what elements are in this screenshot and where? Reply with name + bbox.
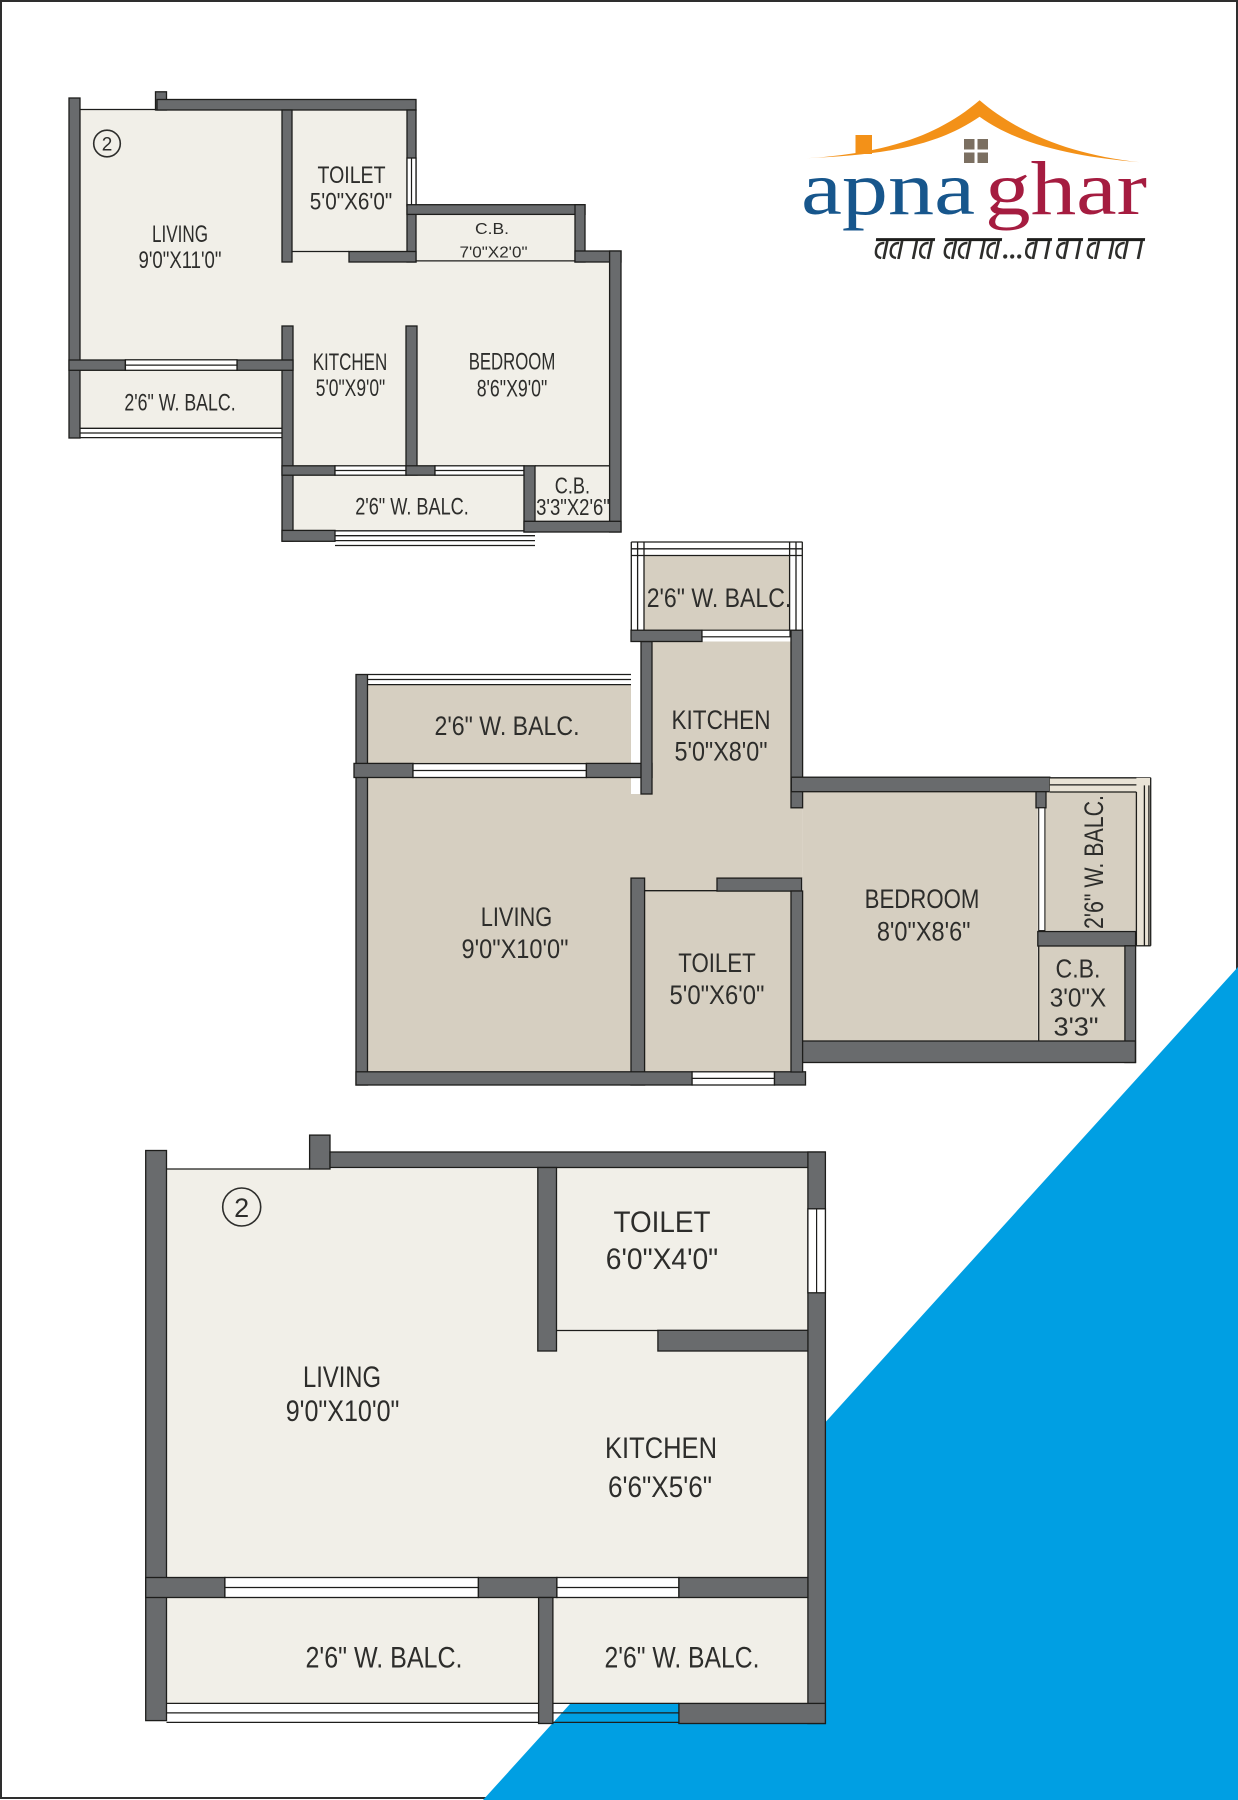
svg-text:TOILET: TOILET bbox=[678, 948, 756, 978]
svg-text:7'0"X2'0": 7'0"X2'0" bbox=[460, 244, 528, 261]
svg-text:LIVING: LIVING bbox=[303, 1361, 381, 1394]
svg-text:apna: apna bbox=[801, 147, 975, 231]
svg-text:8'0"X8'6": 8'0"X8'6" bbox=[877, 916, 971, 946]
svg-text:LIVING: LIVING bbox=[481, 902, 553, 932]
svg-text:5'0"X6'0": 5'0"X6'0" bbox=[310, 189, 393, 216]
svg-text:9'0"X11'0": 9'0"X11'0" bbox=[139, 247, 222, 274]
svg-text:2'6" W. BALC.: 2'6" W. BALC. bbox=[435, 711, 580, 741]
svg-text:2'6" W. BALC.: 2'6" W. BALC. bbox=[306, 1641, 463, 1674]
svg-text:C.B.: C.B. bbox=[1056, 954, 1101, 984]
svg-text:KITCHEN: KITCHEN bbox=[313, 349, 388, 376]
svg-text:5'0"X6'0": 5'0"X6'0" bbox=[670, 980, 765, 1010]
svg-text:6'6"X5'6": 6'6"X5'6" bbox=[608, 1471, 712, 1504]
svg-text:ghar: ghar bbox=[985, 147, 1147, 231]
svg-text:3'0"X: 3'0"X bbox=[1050, 983, 1107, 1013]
svg-text:6'0"X4'0": 6'0"X4'0" bbox=[606, 1243, 718, 1276]
svg-text:2'6" W. BALC.: 2'6" W. BALC. bbox=[605, 1641, 760, 1674]
svg-text:BEDROOM: BEDROOM bbox=[865, 884, 980, 914]
svg-text:BEDROOM: BEDROOM bbox=[469, 349, 556, 376]
svg-text:2: 2 bbox=[234, 1193, 249, 1223]
svg-text:3'3": 3'3" bbox=[1054, 1012, 1099, 1042]
svg-text:TOILET: TOILET bbox=[318, 162, 386, 189]
svg-text:5'0"X8'0": 5'0"X8'0" bbox=[675, 736, 768, 766]
svg-text:3'3"X2'6": 3'3"X2'6" bbox=[536, 494, 610, 520]
svg-text:C.B.: C.B. bbox=[475, 221, 509, 238]
svg-text:2'6" W. BALC.: 2'6" W. BALC. bbox=[355, 494, 469, 521]
svg-text:8'6"X9'0": 8'6"X9'0" bbox=[477, 376, 548, 403]
svg-text:9'0"X10'0": 9'0"X10'0" bbox=[462, 934, 569, 964]
svg-text:2'6" W. BALC.: 2'6" W. BALC. bbox=[1079, 795, 1109, 929]
svg-text:9'0"X10'0": 9'0"X10'0" bbox=[286, 1395, 400, 1428]
svg-text:KITCHEN: KITCHEN bbox=[672, 705, 771, 735]
svg-text:TOILET: TOILET bbox=[614, 1206, 711, 1239]
svg-text:2: 2 bbox=[102, 134, 113, 155]
svg-text:2'6" W. BALC.: 2'6" W. BALC. bbox=[124, 390, 235, 417]
svg-text:LIVING: LIVING bbox=[152, 221, 208, 248]
svg-text:KITCHEN: KITCHEN bbox=[605, 1432, 717, 1465]
svg-text:5'0"X9'0": 5'0"X9'0" bbox=[316, 375, 386, 402]
svg-text:2'6" W. BALC.: 2'6" W. BALC. bbox=[647, 583, 792, 613]
